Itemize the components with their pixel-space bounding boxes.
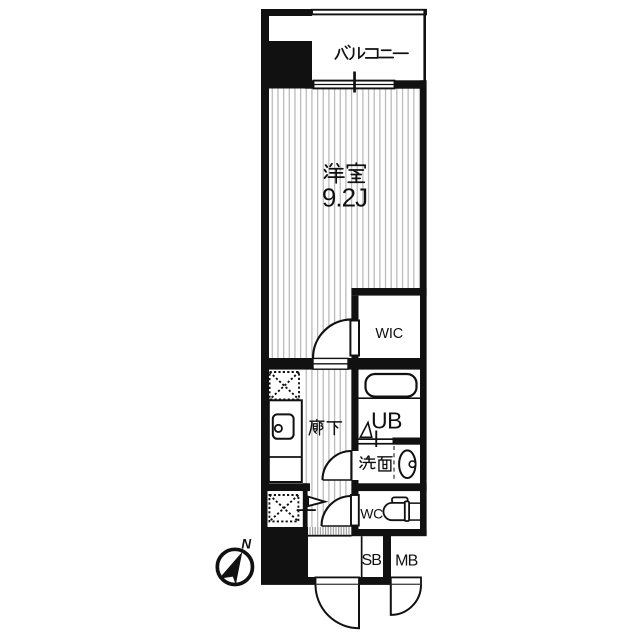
svg-text:SB: SB (362, 552, 382, 569)
svg-text:WC: WC (360, 506, 383, 522)
svg-text:N: N (241, 537, 251, 552)
svg-text:9.2J: 9.2J (322, 183, 367, 213)
svg-text:MB: MB (395, 552, 418, 569)
svg-text:WIC: WIC (375, 326, 403, 342)
svg-text:UB: UB (371, 408, 402, 434)
